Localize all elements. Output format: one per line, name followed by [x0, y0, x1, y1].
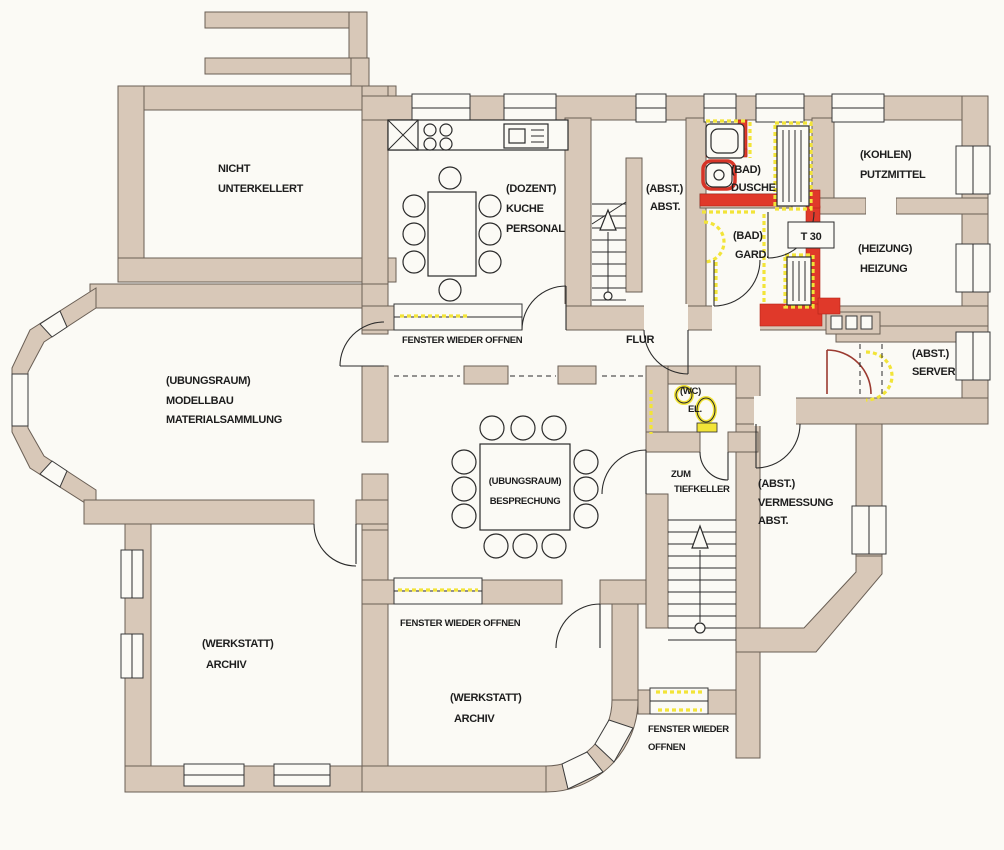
label-heizung: (HEIZUNG)	[858, 243, 913, 255]
label-kohlen: (KOHLEN)	[860, 149, 912, 161]
svg-text:DUSCHE: DUSCHE	[731, 182, 776, 194]
bathroom-fixtures	[706, 124, 744, 187]
note-fenster-sued: FENSTER WIEDER	[648, 724, 729, 735]
stair-direction-arrow	[692, 526, 708, 548]
floor-plan-page: NICHT UNTERKELLERT (DOZENT) KUCHE PERSON…	[0, 0, 1004, 850]
svg-text:KUCHE: KUCHE	[506, 203, 544, 215]
label-bad-dusche: (BAD)	[731, 164, 761, 176]
stair-tiefkeller	[668, 520, 736, 640]
svg-text:TIEFKELLER: TIEFKELLER	[674, 484, 730, 495]
note-fenster-kueche: FENSTER WIEDER OFFNEN	[402, 335, 523, 346]
door-vermessung	[756, 424, 800, 468]
label-nicht-unterkellert: NICHT	[218, 163, 251, 175]
label-vermessung: (ABST.)	[758, 478, 796, 490]
svg-text:T 30: T 30	[801, 231, 822, 243]
t30-door-tag: T 30	[788, 222, 834, 248]
label-treppe-abst: (ABST.)	[646, 183, 684, 195]
stair-direction-arrow	[600, 210, 616, 230]
label-wc: (WC)	[680, 386, 701, 397]
label-server: (ABST.)	[912, 348, 950, 360]
radiator-icon	[777, 126, 809, 206]
door-corridor	[602, 450, 646, 494]
svg-text:ABST.: ABST.	[650, 201, 681, 213]
door-werkstatt-mitte	[556, 604, 600, 648]
door-garderobe	[714, 260, 760, 306]
floor-plan-drawing: NICHT UNTERKELLERT (DOZENT) KUCHE PERSON…	[0, 0, 1004, 850]
svg-text:UNTERKELLERT: UNTERKELLERT	[218, 183, 304, 195]
svg-text:VERMESSUNG: VERMESSUNG	[758, 497, 833, 509]
svg-text:MODELLBAU: MODELLBAU	[166, 395, 234, 407]
kitchen-table-group	[403, 167, 501, 301]
svg-text:MATERIALSAMMLUNG: MATERIALSAMMLUNG	[166, 414, 282, 426]
label-bad-gard: (BAD)	[733, 230, 763, 242]
curved-bay-wall	[546, 700, 638, 792]
kitchen-counter	[388, 120, 568, 150]
note-fenster-werkstatt: FENSTER WIEDER OFFNEN	[400, 618, 521, 629]
svg-text:HEIZUNG: HEIZUNG	[860, 263, 907, 275]
svg-text:BESPRECHUNG: BESPRECHUNG	[490, 496, 561, 507]
svg-text:PUTZMITTEL: PUTZMITTEL	[860, 169, 926, 181]
meeting-table-group	[452, 416, 598, 558]
svg-text:ARCHIV: ARCHIV	[454, 713, 495, 725]
svg-text:ABST.: ABST.	[758, 515, 789, 527]
ventilation-niche	[826, 312, 880, 334]
svg-text:PERSONAL: PERSONAL	[506, 223, 565, 235]
door-wc	[700, 452, 728, 480]
stair-upper	[592, 202, 626, 300]
svg-text:ARCHIV: ARCHIV	[206, 659, 247, 671]
server-door-swing-yellow	[866, 352, 892, 400]
svg-text:EL.: EL.	[688, 404, 702, 415]
label-flur: FLUR	[626, 334, 654, 346]
svg-text:GARD.: GARD.	[735, 249, 769, 261]
label-werkstatt-links: (WERKSTATT)	[202, 638, 274, 650]
label-besprechung: (UBUNGSRAUM)	[489, 476, 562, 487]
door-server-red	[827, 350, 871, 394]
door-werkstatt-links	[314, 524, 356, 566]
label-kueche: (DOZENT)	[506, 183, 557, 195]
label-modellbau: (UBUNGSRAUM)	[166, 375, 251, 387]
label-werkstatt-mitte: (WERKSTATT)	[450, 692, 522, 704]
label-tiefkeller: ZUM	[671, 469, 691, 480]
svg-text:SERVER: SERVER	[912, 366, 956, 378]
svg-text:OFFNEN: OFFNEN	[648, 742, 686, 753]
